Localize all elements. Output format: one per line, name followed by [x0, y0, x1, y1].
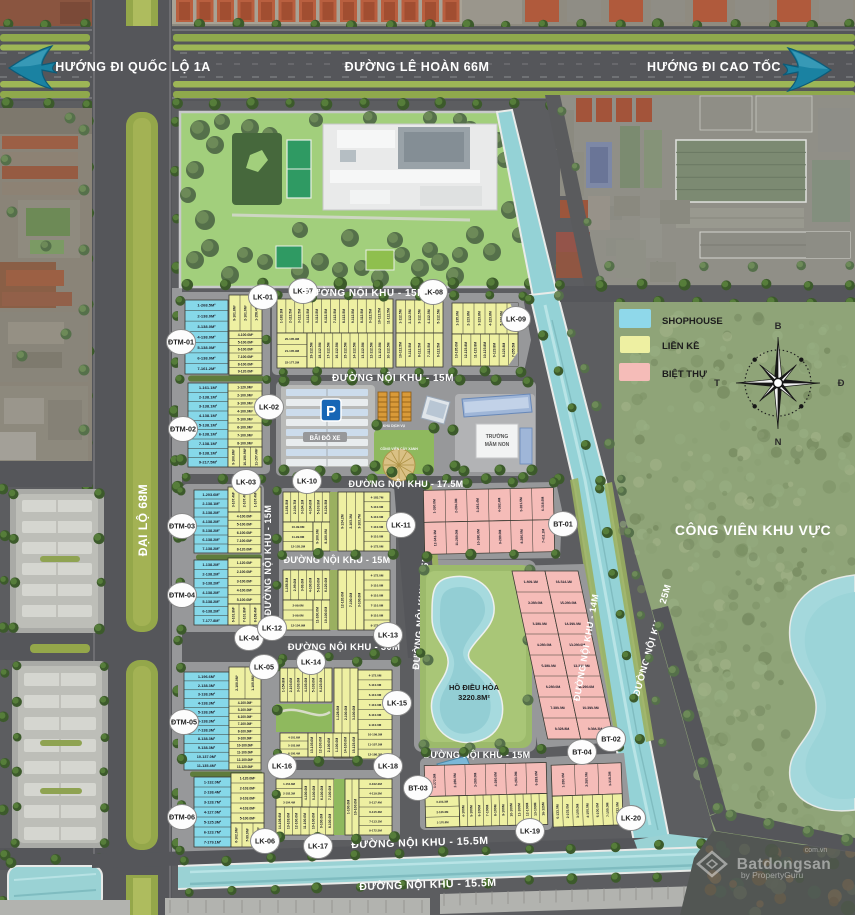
svg-text:7-138.1M²: 7-138.1M²	[199, 441, 218, 446]
svg-text:3-123.8M: 3-123.8M	[478, 311, 482, 325]
svg-text:5-280.0M: 5-280.0M	[541, 664, 556, 668]
svg-text:2-100.0M²: 2-100.0M²	[237, 570, 253, 574]
svg-text:4-138.0M²: 4-138.0M²	[197, 334, 216, 339]
svg-text:2-104.7M: 2-104.7M	[293, 500, 297, 514]
svg-text:9-100.8M²: 9-100.8M²	[232, 448, 236, 464]
svg-text:5-103.9M: 5-103.9M	[316, 500, 320, 514]
svg-text:ĐƯỜNG LÊ HOÀN 66M: ĐƯỜNG LÊ HOÀN 66M	[345, 59, 490, 74]
svg-text:6-112.5M: 6-112.5M	[436, 343, 440, 357]
svg-text:12-154.9M: 12-154.9M	[291, 623, 306, 627]
svg-text:7-255.5M: 7-255.5M	[511, 343, 515, 357]
svg-text:6-138.0M²: 6-138.0M²	[197, 356, 216, 361]
svg-text:3-100.0M²: 3-100.0M²	[237, 401, 253, 405]
svg-text:1-120.0M²: 1-120.0M²	[240, 776, 256, 780]
svg-text:8-100M: 8-100M	[493, 804, 497, 816]
svg-text:4-138.2M²: 4-138.2M²	[202, 591, 220, 595]
svg-text:MẦM NON: MẦM NON	[485, 441, 510, 448]
svg-text:B: B	[775, 321, 782, 332]
svg-text:1-161.1M²: 1-161.1M²	[199, 385, 218, 390]
svg-text:SHOPHOUSE: SHOPHOUSE	[662, 316, 723, 327]
svg-text:5-110.0M: 5-110.0M	[369, 683, 382, 687]
svg-text:5-100.0M²: 5-100.0M²	[237, 417, 253, 421]
svg-text:9-110.0M: 9-110.0M	[369, 723, 382, 727]
svg-text:11-100.0M: 11-100.0M	[303, 813, 307, 829]
svg-text:4-100.0M: 4-100.0M	[308, 578, 312, 592]
svg-text:7-280.0M: 7-280.0M	[550, 706, 565, 710]
svg-text:3-103.0M²: 3-103.0M²	[240, 796, 256, 800]
svg-text:11-112.5M: 11-112.5M	[387, 308, 391, 324]
svg-text:9-112.5M: 9-112.5M	[351, 309, 355, 323]
svg-text:1-107.4M²: 1-107.4M²	[254, 491, 258, 507]
svg-text:1-120.0M²: 1-120.0M²	[237, 385, 253, 389]
svg-text:3-100.0M: 3-100.0M	[352, 706, 356, 720]
svg-text:HƯỚNG ĐI CAO TỐC: HƯỚNG ĐI CAO TỐC	[647, 59, 781, 74]
svg-text:11-123.8M: 11-123.8M	[474, 342, 478, 358]
svg-text:6-100.0M²: 6-100.0M²	[237, 531, 253, 535]
svg-text:4-104.0M: 4-104.0M	[308, 500, 312, 514]
svg-text:7-110.0M: 7-110.0M	[371, 525, 384, 529]
svg-text:LK-19: LK-19	[520, 827, 540, 836]
svg-text:4-100.0M: 4-100.0M	[585, 803, 590, 818]
svg-text:9-217.5M²: 9-217.5M²	[199, 460, 218, 465]
svg-text:2-138.4M²: 2-138.4M²	[204, 790, 222, 794]
svg-text:com.vn: com.vn	[805, 847, 828, 854]
svg-text:16-314.1M: 16-314.1M	[555, 580, 572, 584]
svg-text:4-100M: 4-100M	[461, 805, 465, 817]
svg-text:6-100.0M: 6-100.0M	[320, 786, 324, 800]
svg-text:2-101.6M²: 2-101.6M²	[244, 304, 248, 320]
svg-text:14-108.6M: 14-108.6M	[278, 813, 282, 829]
svg-text:3-102.2M: 3-102.2M	[369, 782, 382, 786]
svg-text:2-112.5M: 2-112.5M	[408, 309, 412, 323]
svg-text:5-138.3M²: 5-138.3M²	[198, 711, 216, 715]
svg-text:1-154.8M: 1-154.8M	[282, 678, 286, 692]
svg-text:6-120.0M: 6-120.0M	[324, 578, 328, 592]
svg-text:3-112.5M: 3-112.5M	[418, 309, 422, 323]
svg-text:Đ: Đ	[838, 378, 845, 389]
svg-text:12-112.5M: 12-112.5M	[370, 342, 374, 358]
svg-text:3220.8M²: 3220.8M²	[458, 693, 490, 702]
svg-text:2-103.3M: 2-103.3M	[349, 514, 353, 528]
svg-text:ĐTM-04: ĐTM-04	[169, 591, 195, 600]
svg-text:16-112.5M: 16-112.5M	[335, 342, 339, 358]
svg-text:2-284.3M: 2-284.3M	[454, 498, 458, 513]
svg-text:1-120.0M²: 1-120.0M²	[237, 561, 253, 565]
svg-text:1-138.2M²: 1-138.2M²	[202, 563, 220, 567]
svg-text:1-132.0M²: 1-132.0M²	[204, 780, 222, 784]
svg-text:LK-05: LK-05	[254, 663, 274, 672]
svg-text:12-100.0M²: 12-100.0M²	[237, 758, 253, 762]
svg-text:7-177.8M²: 7-177.8M²	[202, 619, 220, 623]
svg-text:9-172.0M: 9-172.0M	[371, 545, 384, 549]
svg-text:HƯỚNG ĐI QUỐC LỘ 1A: HƯỚNG ĐI QUỐC LỘ 1A	[55, 59, 211, 74]
svg-text:2-103.0M: 2-103.0M	[289, 678, 293, 692]
svg-text:5-138.0M²: 5-138.0M²	[197, 345, 216, 350]
svg-text:6-100.0M²: 6-100.0M²	[238, 715, 253, 719]
svg-text:3-280.0M: 3-280.0M	[532, 622, 547, 626]
svg-text:4-100.0M²: 4-100.0M²	[238, 701, 253, 705]
svg-text:11-135.4M²: 11-135.4M²	[197, 764, 217, 768]
svg-text:6-110.0M: 6-110.0M	[369, 693, 382, 697]
svg-text:2-280.0M: 2-280.0M	[453, 773, 457, 788]
svg-text:1-155.3M: 1-155.3M	[285, 578, 289, 592]
svg-text:by PropertyGuru: by PropertyGuru	[741, 870, 804, 880]
svg-text:LK-04: LK-04	[239, 634, 259, 643]
svg-text:10-100.0M²: 10-100.0M²	[237, 744, 253, 748]
svg-text:8-100.0M: 8-100.0M	[328, 814, 332, 828]
svg-text:2-112.5M: 2-112.5M	[288, 309, 292, 323]
svg-text:4-119.5M: 4-119.5M	[369, 791, 382, 795]
svg-text:2-100.0M: 2-100.0M	[327, 738, 331, 752]
svg-text:13-135.0M: 13-135.0M	[455, 342, 459, 358]
svg-text:4-183.7M: 4-183.7M	[371, 495, 384, 499]
svg-text:1-183.3M: 1-183.3M	[279, 309, 283, 323]
svg-text:2-100.0M²: 2-100.0M²	[235, 674, 239, 690]
svg-text:9-280.0M: 9-280.0M	[498, 529, 502, 544]
svg-text:4-172.0M: 4-172.0M	[369, 673, 382, 677]
svg-text:5-100.0M²: 5-100.0M²	[238, 340, 254, 344]
svg-text:LK-02: LK-02	[259, 403, 279, 412]
svg-text:9-112.5M: 9-112.5M	[408, 343, 412, 357]
svg-text:3-138.3M²: 3-138.3M²	[198, 693, 216, 697]
svg-text:9-120.0M²: 9-120.0M²	[238, 370, 254, 374]
svg-text:2-138.0M²: 2-138.0M²	[197, 313, 216, 318]
svg-text:9-100.0M²: 9-100.0M²	[238, 736, 253, 740]
svg-text:7-112.5M: 7-112.5M	[333, 309, 337, 323]
svg-text:1-409.1M: 1-409.1M	[523, 580, 538, 584]
svg-text:8-100.0M²: 8-100.0M²	[238, 729, 253, 733]
svg-text:10-280.0M: 10-280.0M	[476, 529, 480, 545]
svg-text:8-100.0M²: 8-100.0M²	[238, 362, 254, 366]
svg-text:LK-09: LK-09	[506, 315, 526, 324]
svg-text:3-103.7M: 3-103.7M	[358, 514, 362, 528]
svg-text:19-112.5M: 19-112.5M	[309, 342, 313, 358]
svg-text:5-100.0M: 5-100.0M	[316, 578, 320, 592]
svg-text:4-112.5M: 4-112.5M	[306, 309, 310, 323]
svg-text:3-107.4M²: 3-107.4M²	[232, 491, 236, 507]
svg-text:12-120.0M: 12-120.0M	[340, 592, 344, 608]
svg-text:2-99.0M: 2-99.0M	[293, 579, 297, 592]
svg-text:6-112.5M: 6-112.5M	[324, 309, 328, 323]
svg-text:3-100.0M²: 3-100.0M²	[237, 579, 253, 583]
svg-text:LK-12: LK-12	[262, 624, 282, 633]
svg-text:ĐƯỜNG NỘI KHU - 15M: ĐƯỜNG NỘI KHU - 15M	[424, 749, 531, 760]
svg-text:LK-15: LK-15	[387, 699, 407, 708]
svg-text:16-125M: 16-125M	[541, 802, 545, 816]
svg-text:1-135.0M: 1-135.0M	[456, 311, 460, 325]
svg-text:6-280.0M: 6-280.0M	[546, 685, 561, 689]
svg-text:CÔNG VIÊN CÂY XANH: CÔNG VIÊN CÂY XANH	[380, 446, 418, 451]
svg-text:4-100.0M²: 4-100.0M²	[237, 589, 253, 593]
svg-text:6-138.3M²: 6-138.3M²	[198, 719, 216, 723]
svg-text:3-100.0M: 3-100.0M	[575, 803, 580, 818]
svg-text:7-100.0M²: 7-100.0M²	[238, 355, 254, 359]
svg-text:CÔNG VIÊN KHU VỰC: CÔNG VIÊN KHU VỰC	[675, 521, 831, 538]
svg-text:5-100.0M: 5-100.0M	[312, 786, 316, 800]
svg-text:3-104.4M: 3-104.4M	[283, 801, 295, 805]
svg-text:2-106.3M: 2-106.3M	[436, 810, 449, 814]
svg-text:BT-04: BT-04	[572, 748, 592, 757]
svg-text:6-100.0M²: 6-100.0M²	[237, 425, 253, 429]
svg-text:1-161.5M: 1-161.5M	[285, 500, 289, 514]
svg-text:6-102.9M²: 6-102.9M²	[235, 826, 239, 842]
svg-text:ĐTM-05: ĐTM-05	[171, 718, 197, 727]
svg-text:8-110.0M: 8-110.0M	[371, 535, 384, 539]
svg-text:9-100.0M: 9-100.0M	[315, 529, 319, 543]
svg-text:15-123.0M: 15-123.0M	[352, 737, 356, 753]
svg-text:P: P	[326, 403, 336, 420]
svg-text:4-138.2M²: 4-138.2M²	[202, 520, 220, 524]
svg-text:ĐẠI LỘ 68M: ĐẠI LỘ 68M	[135, 484, 150, 556]
svg-text:11-157.4M²: 11-157.4M²	[254, 448, 258, 466]
svg-text:8-138.3M²: 8-138.3M²	[198, 737, 216, 741]
svg-text:2-280.0M: 2-280.0M	[528, 601, 543, 605]
svg-text:1-350.0M: 1-350.0M	[432, 499, 436, 514]
svg-text:9-112.5M: 9-112.5M	[369, 309, 373, 323]
svg-text:12-100M: 12-100M	[525, 803, 529, 817]
svg-text:3-99.0M: 3-99.0M	[301, 579, 305, 592]
svg-text:10-100.0M: 10-100.0M	[354, 799, 358, 815]
svg-text:BT-02: BT-02	[601, 735, 621, 744]
svg-text:2-138.1M²: 2-138.1M²	[202, 502, 220, 506]
svg-text:LK-03: LK-03	[236, 478, 256, 487]
svg-text:3-138.2M²: 3-138.2M²	[202, 511, 220, 515]
svg-text:7-100.0M: 7-100.0M	[328, 786, 332, 800]
svg-text:7-179.1M²: 7-179.1M²	[204, 840, 222, 844]
svg-text:8-120.0M²: 8-120.0M²	[237, 547, 253, 551]
svg-text:7-411.1M: 7-411.1M	[541, 529, 545, 543]
svg-text:8-100.0M²: 8-100.0M²	[237, 441, 253, 445]
svg-text:5-283.0M: 5-283.0M	[514, 771, 518, 786]
svg-text:7-99.9M²: 7-99.9M²	[246, 827, 250, 841]
svg-text:9-100.0M: 9-100.0M	[320, 814, 324, 828]
svg-text:3-138.0M²: 3-138.0M²	[197, 324, 216, 329]
svg-text:5-100M: 5-100M	[469, 805, 473, 817]
svg-text:1-154.8M: 1-154.8M	[283, 782, 295, 786]
svg-text:4-100.0M²: 4-100.0M²	[237, 515, 253, 519]
svg-text:5-103.0M: 5-103.0M	[311, 678, 315, 692]
svg-text:2-99.0M: 2-99.0M	[292, 603, 304, 607]
svg-text:6-138.2M²: 6-138.2M²	[202, 610, 220, 614]
svg-text:21-105.9M: 21-105.9M	[285, 349, 300, 353]
svg-text:6-100M: 6-100M	[477, 805, 481, 817]
svg-text:5-100.0M²: 5-100.0M²	[237, 598, 253, 602]
svg-text:1-128.0M: 1-128.0M	[336, 706, 340, 720]
svg-text:5-110.0M: 5-110.0M	[371, 505, 384, 509]
svg-text:8-123.8M: 8-123.8M	[502, 343, 506, 357]
svg-text:6-101.8M²: 6-101.8M²	[232, 606, 236, 622]
svg-text:3-128.7M²: 3-128.7M²	[204, 800, 222, 804]
svg-text:3-138.1M²: 3-138.1M²	[199, 404, 218, 409]
svg-text:6-283.0M: 6-283.0M	[534, 771, 538, 786]
svg-text:LIỀN KỀ: LIỀN KỀ	[662, 341, 699, 352]
svg-text:5-117.4M: 5-117.4M	[369, 801, 382, 805]
svg-text:10-100.0M: 10-100.0M	[311, 813, 315, 829]
svg-text:6-100.0M²: 6-100.0M²	[238, 348, 254, 352]
svg-text:10-137.0M²: 10-137.0M²	[197, 755, 217, 759]
svg-text:ĐƯỜNG NỘI KHU - 17.5M: ĐƯỜNG NỘI KHU - 17.5M	[349, 478, 464, 489]
svg-text:BIỆT THỰ: BIỆT THỰ	[662, 368, 707, 380]
svg-text:BT-01: BT-01	[553, 520, 573, 529]
svg-text:5-100.0M²: 5-100.0M²	[238, 708, 253, 712]
svg-text:5-103.9M: 5-103.9M	[288, 743, 300, 747]
svg-text:6-110.0M: 6-110.0M	[371, 515, 384, 519]
svg-text:7-112.5M: 7-112.5M	[427, 343, 431, 357]
svg-text:5-138.2M²: 5-138.2M²	[202, 529, 220, 533]
svg-text:10-112.5M: 10-112.5M	[387, 342, 391, 358]
svg-text:7-138.2M²: 7-138.2M²	[202, 547, 220, 551]
svg-text:6-115.3M: 6-115.3M	[369, 810, 382, 814]
svg-text:LK-16: LK-16	[272, 762, 292, 771]
svg-text:3-138.2M²: 3-138.2M²	[202, 582, 220, 586]
svg-text:LK-06: LK-06	[255, 837, 275, 846]
svg-text:LK-14: LK-14	[301, 658, 321, 667]
svg-text:1-112.5M: 1-112.5M	[399, 309, 403, 323]
svg-text:5-100.0M²: 5-100.0M²	[237, 523, 253, 527]
svg-text:9-124.2M: 9-124.2M	[340, 514, 344, 528]
svg-text:1-170.6M: 1-170.6M	[437, 820, 450, 824]
svg-text:7-110.0M: 7-110.0M	[369, 703, 382, 707]
svg-text:6-138.2M²: 6-138.2M²	[202, 538, 220, 542]
svg-text:3-104.3M: 3-104.3M	[436, 800, 449, 804]
svg-text:9-138.3M²: 9-138.3M²	[198, 746, 216, 750]
svg-text:14-100.0M: 14-100.0M	[344, 737, 348, 753]
svg-text:4-100.0M²: 4-100.0M²	[237, 409, 253, 413]
svg-text:2-280.0M: 2-280.0M	[584, 772, 589, 787]
svg-text:4-280.0M: 4-280.0M	[537, 643, 552, 647]
svg-text:22-177.2M: 22-177.2M	[285, 361, 300, 365]
svg-text:11-280.0M: 11-280.0M	[455, 529, 459, 545]
svg-text:7-100.0M: 7-100.0M	[349, 593, 353, 607]
svg-text:8-112.5M: 8-112.5M	[418, 343, 422, 357]
svg-text:3-318.3M: 3-318.3M	[608, 771, 613, 786]
svg-text:5-138.2M²: 5-138.2M²	[202, 600, 220, 604]
svg-text:T: T	[714, 378, 720, 389]
svg-text:14-112.5M: 14-112.5M	[352, 342, 356, 358]
svg-text:13-103.0M: 13-103.0M	[286, 813, 290, 829]
svg-text:7-101.8M²: 7-101.8M²	[243, 606, 247, 622]
svg-text:7-161.2M²: 7-161.2M²	[197, 366, 216, 371]
svg-text:1-100.0M: 1-100.0M	[347, 800, 351, 814]
svg-text:1-272.0M: 1-272.0M	[433, 773, 437, 788]
svg-text:10-109.5M: 10-109.5M	[368, 733, 383, 737]
svg-text:4-103.0M²: 4-103.0M²	[240, 806, 256, 810]
svg-text:8-112.5M: 8-112.5M	[360, 309, 364, 323]
svg-text:4-123.8M: 4-123.8M	[489, 311, 493, 325]
svg-text:7-110.0M: 7-110.0M	[371, 603, 384, 607]
svg-text:N: N	[775, 437, 782, 448]
svg-text:LK-20: LK-20	[621, 814, 641, 823]
svg-text:4-100.0M: 4-100.0M	[304, 786, 308, 800]
svg-text:10-112.5M: 10-112.5M	[378, 308, 382, 324]
svg-text:1-280.0M: 1-280.0M	[561, 773, 566, 788]
svg-text:6-138.1M²: 6-138.1M²	[199, 432, 218, 437]
svg-text:9-123.8M: 9-123.8M	[492, 343, 496, 357]
svg-text:10-123.8M: 10-123.8M	[483, 342, 487, 358]
svg-text:7-113.1M: 7-113.1M	[369, 819, 382, 823]
svg-text:6-123.7M²: 6-123.7M²	[204, 830, 222, 834]
svg-text:7-100.0M: 7-100.0M	[605, 802, 610, 817]
svg-text:1-100.0M: 1-100.0M	[335, 738, 339, 752]
svg-text:2-138.3M²: 2-138.3M²	[198, 684, 216, 688]
svg-text:5-133.0M: 5-133.0M	[555, 804, 560, 819]
svg-text:6-123.0M: 6-123.0M	[319, 678, 323, 692]
svg-text:17-112.5M: 17-112.5M	[327, 342, 331, 358]
svg-text:8-112.5M: 8-112.5M	[342, 309, 346, 323]
svg-text:7-100.0M²: 7-100.0M²	[237, 539, 253, 543]
svg-text:10-100M: 10-100M	[509, 803, 513, 817]
svg-text:12-155.2M: 12-155.2M	[291, 545, 306, 549]
svg-text:5-138.1M²: 5-138.1M²	[199, 422, 218, 427]
svg-text:12-343.3M: 12-343.3M	[433, 530, 437, 546]
svg-text:2-138.1M²: 2-138.1M²	[199, 394, 218, 399]
svg-text:4-280.0M: 4-280.0M	[494, 772, 498, 787]
svg-text:12-123.8M: 12-123.8M	[464, 342, 468, 358]
svg-text:LK-11: LK-11	[391, 521, 411, 530]
svg-text:6-318.6M: 6-318.6M	[541, 496, 545, 511]
svg-text:ĐƯỜNG NỘI KHU - 15M: ĐƯỜNG NỘI KHU - 15M	[284, 554, 391, 565]
svg-text:11-99.8M: 11-99.8M	[292, 535, 305, 539]
svg-text:1-196.6M²: 1-196.6M²	[198, 675, 216, 679]
svg-text:6-100.4M: 6-100.4M	[288, 751, 300, 755]
svg-text:ĐƯỜNG NỘI KHU - 15M: ĐƯỜNG NỘI KHU - 15M	[304, 286, 426, 299]
svg-text:10-190.9M²: 10-190.9M²	[243, 447, 247, 465]
svg-text:12-100.0M: 12-100.0M	[319, 737, 323, 753]
svg-text:8-110.0M: 8-110.0M	[371, 613, 384, 617]
svg-text:2-103.0M²: 2-103.0M²	[240, 786, 256, 790]
svg-text:11-112.5M: 11-112.5M	[378, 342, 382, 358]
svg-text:3-280.0M: 3-280.0M	[473, 772, 477, 787]
svg-text:4-138.1M²: 4-138.1M²	[199, 413, 218, 418]
svg-text:12-100.0M: 12-100.0M	[295, 813, 299, 829]
svg-text:9-100M: 9-100M	[501, 804, 505, 816]
svg-text:1-203.6M²: 1-203.6M²	[202, 493, 220, 497]
svg-text:BT-03: BT-03	[408, 784, 428, 793]
svg-text:8-328.8M: 8-328.8M	[554, 727, 569, 731]
svg-text:ĐTM-06: ĐTM-06	[169, 813, 195, 822]
svg-text:LK-10: LK-10	[297, 477, 317, 486]
svg-text:4-127.0M²: 4-127.0M²	[204, 810, 222, 814]
svg-text:2-138.2M²: 2-138.2M²	[202, 572, 220, 576]
svg-text:8-280.0M: 8-280.0M	[520, 529, 524, 544]
svg-text:4-101.6M: 4-101.6M	[288, 735, 300, 739]
svg-text:8-138.1M²: 8-138.1M²	[199, 450, 218, 455]
svg-text:4-112.5M: 4-112.5M	[427, 309, 431, 323]
svg-text:HỒ ĐIỀU HÒA: HỒ ĐIỀU HÒA	[449, 682, 500, 692]
svg-text:6-110.0M: 6-110.0M	[371, 593, 384, 597]
svg-text:20-105.9M: 20-105.9M	[285, 337, 300, 341]
svg-text:11-100.0M²: 11-100.0M²	[237, 751, 253, 755]
svg-text:3-103.0M: 3-103.0M	[297, 678, 301, 692]
svg-text:13-103.0M: 13-103.0M	[310, 737, 314, 753]
svg-text:7-100.0M²: 7-100.0M²	[238, 722, 253, 726]
svg-text:TRƯỜNG: TRƯỜNG	[486, 432, 509, 440]
svg-text:ĐTM-02: ĐTM-02	[170, 425, 196, 434]
svg-text:15-112.5M: 15-112.5M	[344, 342, 348, 358]
svg-text:5-100.0M²: 5-100.0M²	[240, 816, 256, 820]
svg-text:ĐƯỜNG NỘI KHU - 15M: ĐƯỜNG NỘI KHU - 15M	[332, 371, 454, 384]
svg-text:4-138.3M²: 4-138.3M²	[198, 702, 216, 706]
svg-text:LK-18: LK-18	[378, 762, 398, 771]
svg-text:LK-08: LK-08	[423, 288, 443, 297]
svg-text:7-138.3M²: 7-138.3M²	[198, 728, 216, 732]
svg-text:11-100M: 11-100M	[517, 803, 521, 816]
svg-text:5-112.5M: 5-112.5M	[315, 309, 319, 323]
svg-text:9-101.8M²: 9-101.8M²	[233, 304, 237, 320]
svg-text:ĐƯỜNG NỘI KHU - 15M: ĐƯỜNG NỘI KHU - 15M	[262, 505, 273, 616]
svg-text:14-290.0M: 14-290.0M	[564, 622, 581, 626]
svg-text:LK-01: LK-01	[253, 293, 273, 302]
